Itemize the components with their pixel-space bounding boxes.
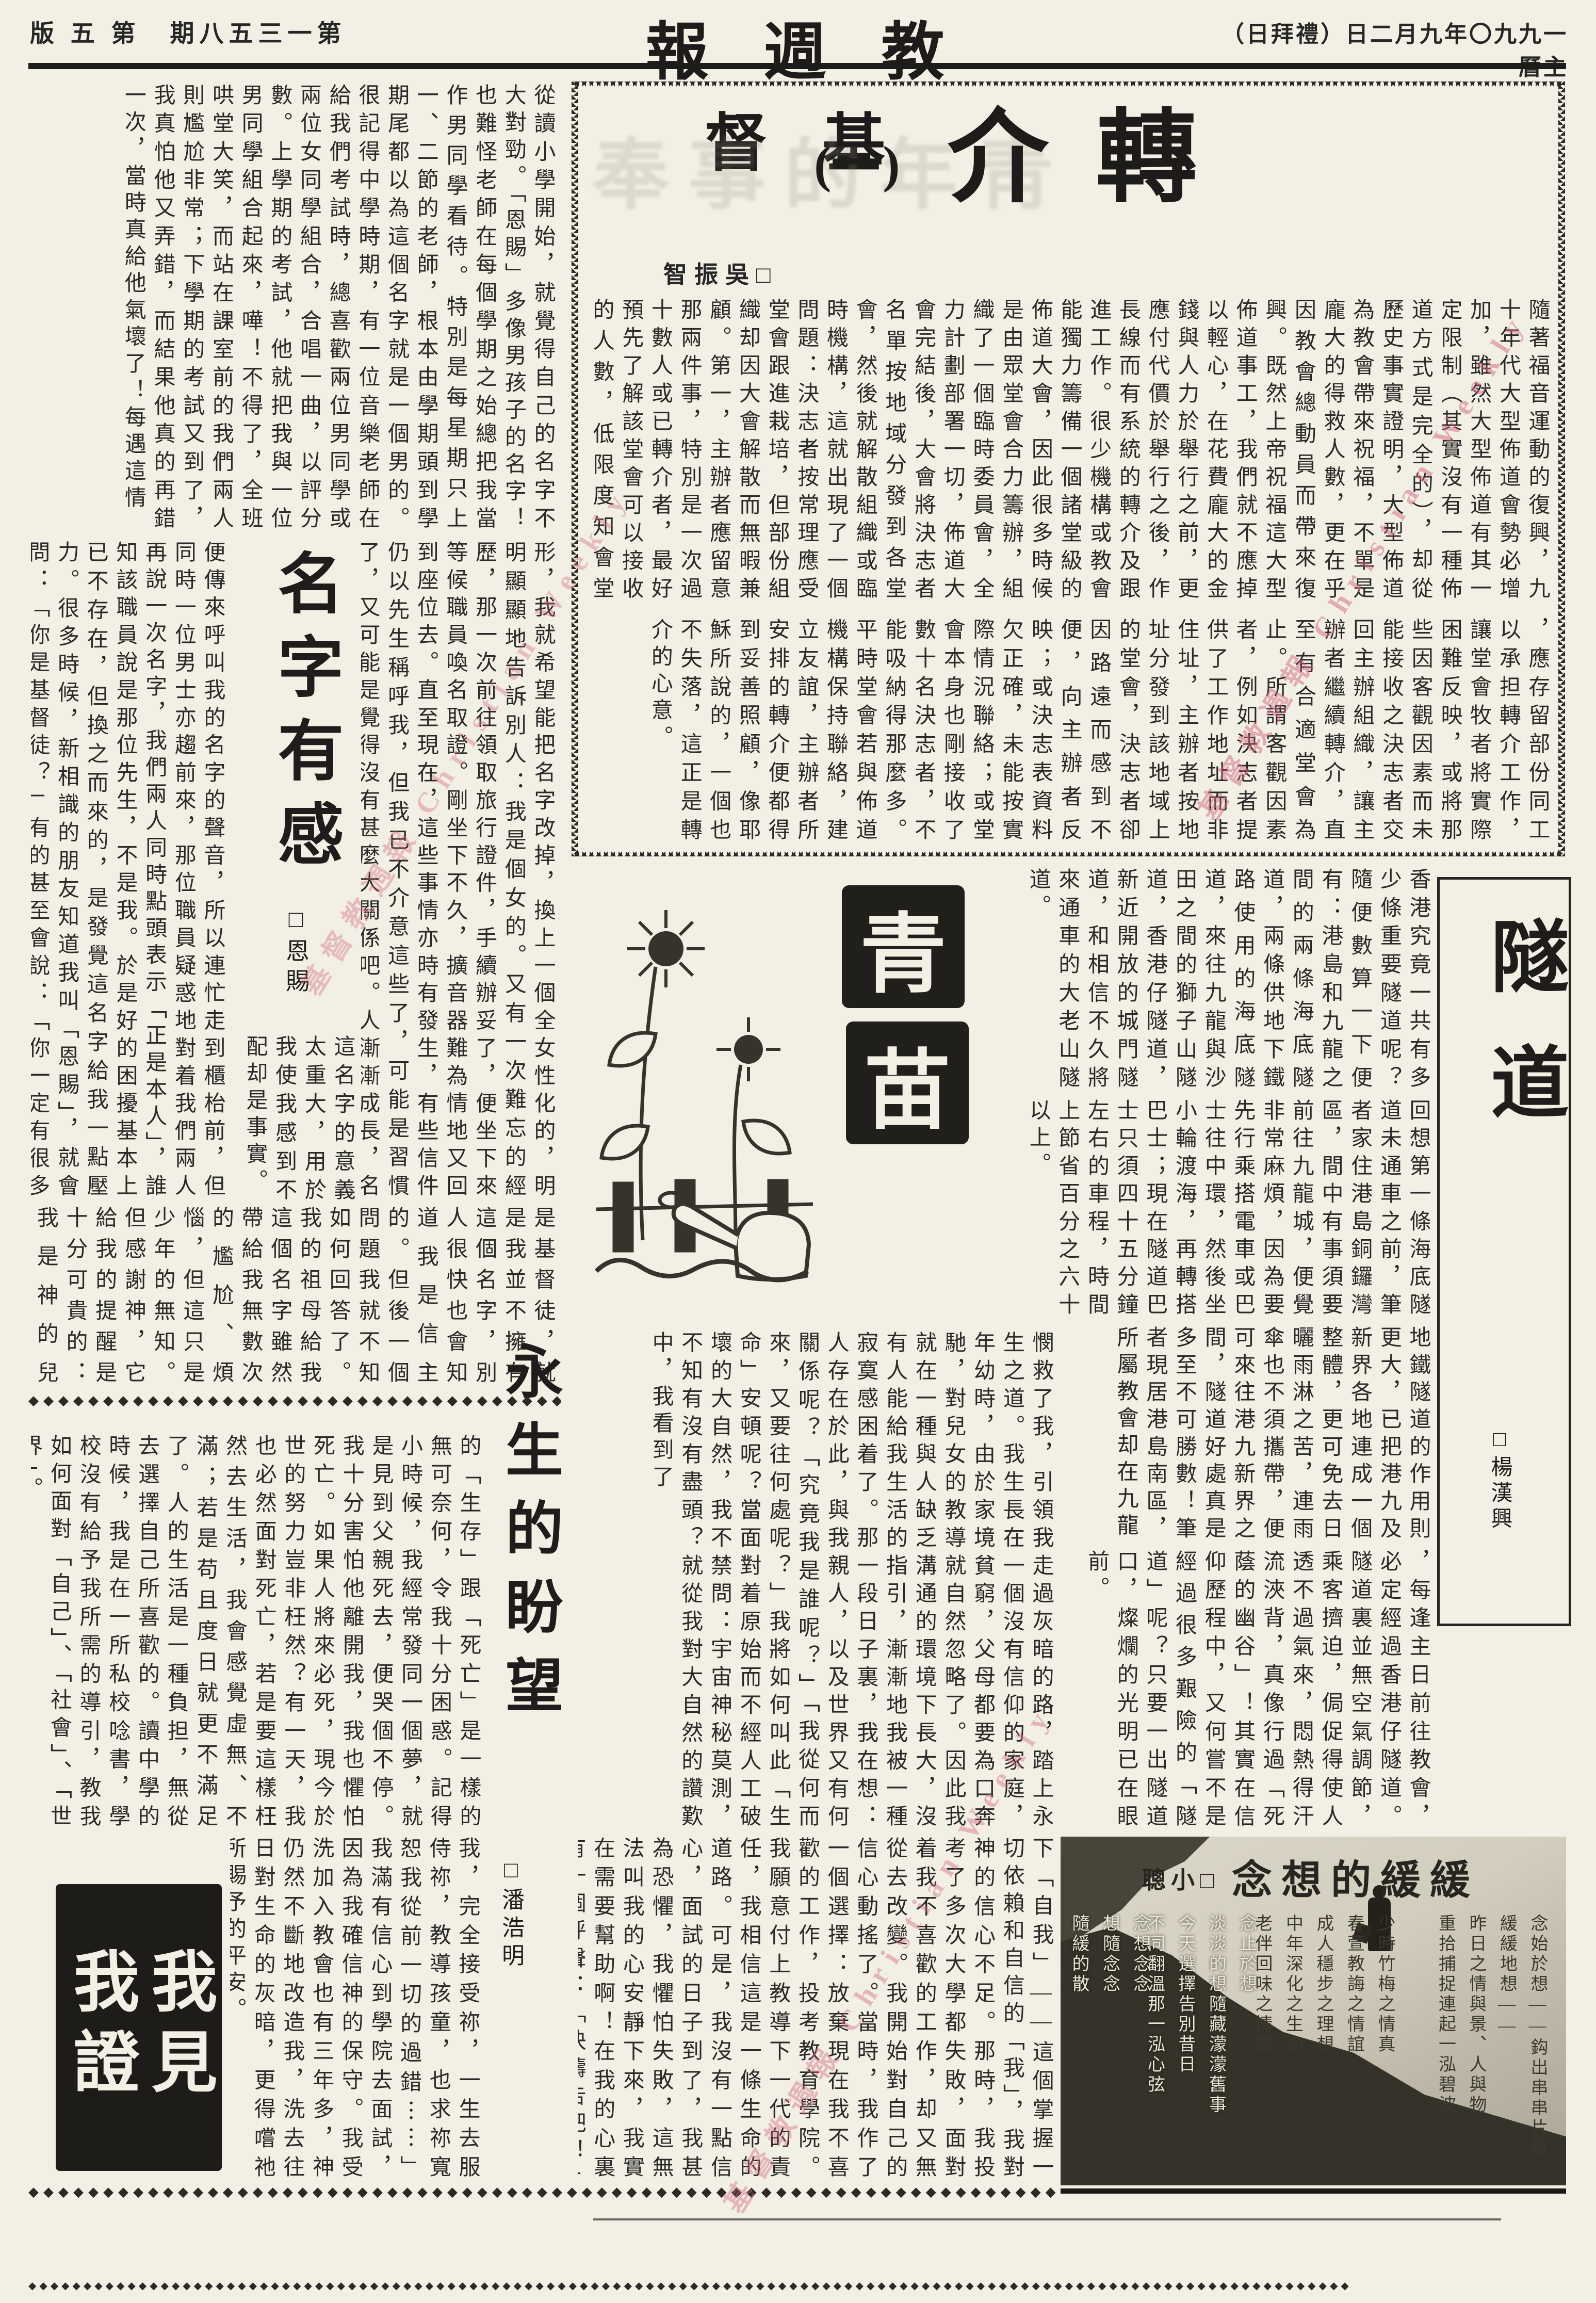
issue-date: （日拜禮）日二月九年〇九九一曆主	[1202, 15, 1568, 82]
poem-stanza-3: 念止於想 淡淡的想隨藏濛濛舊事 今天選擇告別昔日 不同翻溫那一泓心弦	[1164, 1914, 1262, 2172]
zigzag-border-left-icon	[572, 82, 578, 856]
article-suidao-band3: 地鐵隧道的作用則更大，已把港九及新界各地連成一個整體，更可免去日曬雨淋之苦，連雨…	[1060, 1326, 1432, 1544]
thin-bottom-rule	[593, 2218, 1501, 2220]
article-yongsheng-bottom-right: 下「自我」——這個掌握一切依賴和自信的「我」，我對神的信心不足。那時，我投考了多…	[578, 1837, 1055, 2182]
article-mingzi-band-a: 從讀小學開始，就覺得自己的名字不大對勁。「恩賜」多像男孩子的名字！也難怪老師在每…	[31, 84, 557, 533]
article-mingzi-left-columns: 便傳來呼叫我的名字的聲音，所以連忙走到櫃枱前，但同時一位男士亦趨前來，那位職員疑…	[31, 541, 227, 1201]
article-zhuanjie-title-part: (一)	[814, 122, 900, 197]
article-suidao-title: 隧道	[1465, 916, 1579, 1167]
poem-stanza-2: 少時竹梅之情真 春萱教誨之情誼 成人穩步之理想 中年深化之生命 老伴回味之情懷	[1271, 1914, 1400, 2156]
poem-author: 聰小□	[1142, 1861, 1219, 1895]
article-mingzi-title-block: 名字有感 □恩賜 這名字的意義太重大，用於我使我感到不配却是事實。	[233, 545, 357, 1205]
photo-poem-box: 念想的緩緩 聰小□ 念始於想——鈎出串串片段 緩緩地想—— 昨日之情與景、人與物…	[1061, 1837, 1566, 2185]
poem-title: 念想的緩緩	[1232, 1848, 1479, 1906]
qingmiao-block-char-2: 苗	[846, 1021, 969, 1144]
witness-column-logo: 我見 我證	[56, 1884, 222, 2171]
poem-stanza-4: 念想念念 想隨念念 隨緩的散 緩緩的想 散盡於想念間之一絲情	[1078, 1914, 1155, 2177]
witness-logo-text: 我見 我證	[61, 1947, 217, 2108]
article-yongsheng-bottom-left: 我，完全接受祢，一生去服侍祢，教導孩童，也求祢寬恕我從前一切的過錯⋯⋯」我滿有信…	[230, 1837, 482, 2182]
page-edition-label: 版 五 第 期八五三一第	[30, 13, 347, 49]
article-suidao-band4: ，每逢主日前往教會，必定經過香港仔隧道。隧道裏並無空氣調節，乘客擠迫，侷促得使人…	[1060, 1550, 1432, 1831]
article-mingzi-band-c: 是基督徒，就是我並不擁有這個名字，別人很快也會知道我是信主的。但後一個問題我就不…	[31, 1206, 557, 1388]
divider-mingzi-bottom: ◆◆◆◆◆◆◆◆◆◆◆◆◆◆◆◆◆◆◆◆◆◆◆◆◆◆◆◆◆◆◆◆◆◆◆◆	[28, 1394, 561, 1412]
page-bottom-chain: ◆◆◆◆◆◆◆◆◆◆◆◆◆◆◆◆◆◆◆◆◆◆◆◆◆◆◆◆◆◆◆◆◆◆◆◆◆◆◆◆…	[28, 2280, 1566, 2296]
article-zhuanjie-title-char1: 轉	[1096, 108, 1197, 209]
article-yongsheng-left-band: 的「生存」跟「死亡」是一樣的無可奈何，令我十分困惑。記得小時候，我經常發同一個夢…	[31, 1434, 483, 1831]
header-rule	[28, 63, 1566, 69]
article-zhuanjie-title: (一) 介 轉	[814, 108, 1197, 209]
article-zhuanjie-author: 智振吳□	[663, 256, 778, 290]
photo-box-bottom-rule	[1061, 2188, 1566, 2194]
newspaper-page: 版 五 第 期八五三一第 報 週 教 督 基 （日拜禮）日二月九年〇九九一曆主 …	[0, 0, 1596, 2303]
zigzag-border-right-icon	[1558, 82, 1565, 856]
article-suidao-band1: 香港究竟一共有多少條重要隧道呢？隨便數算一下便有：港島和九龍之間的兩條海底隧道，…	[983, 868, 1432, 1093]
article-zhuanjie-band2: ，應存留部份同工以承担轉介工作，讓堂會牧者將實際困難反映，或將那些因客觀因素而未…	[585, 618, 1552, 845]
article-zhuanjie-band1: 隨著福音運動的復興，九十年代大型佈道會勢必增加，雖然大型佈道有其一定限制（其實沒…	[585, 298, 1552, 604]
article-mingzi-mid-tail: 這名字的意義太重大，用於我使我感到不配却是事實。	[233, 1035, 357, 1205]
article-zhuanjie-title-char2: 介	[948, 108, 1049, 209]
zigzag-border-bottom-icon	[572, 850, 1565, 856]
article-mingzi-title: 名字有感	[257, 549, 352, 883]
article-yongsheng-right-band: 憫救了我，引領我走過灰暗的路，踏上永生之道。我生長在一個沒有信仰的家庭，年幼時，…	[567, 1331, 1055, 1831]
zigzag-border-top-icon	[572, 82, 1565, 88]
divider-bottom-left: ◆◆◆◆◆◆◆◆◆◆◆◆◆◆◆◆◆◆◆◆◆◆◆◆◆◆◆◆◆◆◆◆◆◆◆◆◆◆◆◆…	[28, 2185, 1056, 2203]
article-yongsheng-title: 永生的盼望	[487, 1341, 571, 1733]
sunflower-garden-illustration-icon	[565, 879, 844, 1312]
article-suidao-title-box: 隧道 □楊漢興	[1437, 877, 1571, 1626]
article-suidao-author: □楊漢興	[1484, 1428, 1516, 1533]
poem-stanza-1: 念始於想——鈎出串串片段 緩緩地想—— 昨日之情與景、人與物 重拾捕捉連起一泓碧…	[1415, 1914, 1553, 2177]
article-yongsheng-author: □潘浩明	[494, 1857, 527, 1971]
qingmiao-block-char-1: 青	[842, 885, 965, 1008]
qingmiao-section-graphic: 青 苗	[563, 867, 979, 1323]
article-suidao-band2: 回想第一條海底隧道未通車之前，筆者家住港島銅鑼灣區，間中有事須要前往九龍城，便覺…	[983, 1099, 1432, 1320]
